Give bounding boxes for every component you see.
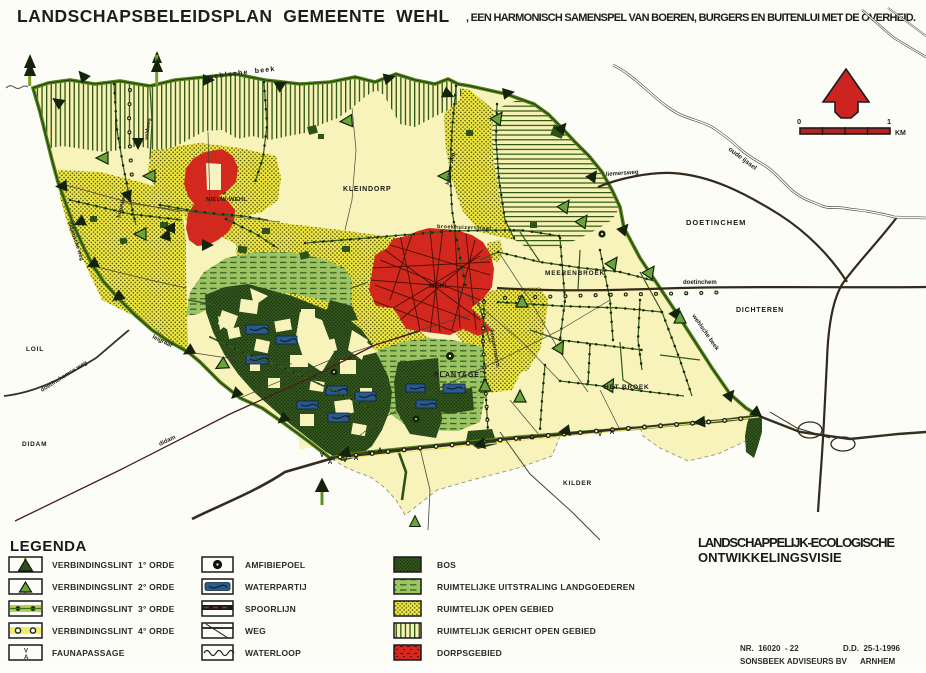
- svg-text:ONTWIKKELINGSVISIE: ONTWIKKELINGSVISIE: [698, 550, 842, 565]
- svg-text:A: A: [354, 456, 359, 462]
- svg-text:V: V: [343, 458, 347, 464]
- svg-text:A: A: [24, 655, 29, 661]
- svg-text:doetinchem: doetinchem: [683, 280, 717, 286]
- svg-text:LOIL: LOIL: [26, 346, 44, 353]
- svg-text:LANDSCHAPSBELEIDSPLAN GEMEENT: LANDSCHAPSBELEIDSPLAN GEMEENTE WEHL: [17, 6, 450, 26]
- svg-text:D.D. 25-1-1996: D.D. 25-1-1996: [843, 644, 900, 653]
- svg-text:RUIMTELIJK OPEN GEBIED: RUIMTELIJK OPEN GEBIED: [437, 604, 554, 614]
- svg-text:AMFIBIEPOEL: AMFIBIEPOEL: [245, 560, 305, 570]
- svg-text:A: A: [378, 448, 383, 454]
- svg-text:V: V: [518, 437, 522, 443]
- svg-text:VERBINDINGSLINT 2° ORDE: VERBINDINGSLINT 2° ORDE: [52, 582, 175, 592]
- svg-text:1: 1: [887, 117, 891, 126]
- svg-text:WEG: WEG: [245, 626, 266, 636]
- svg-text:V: V: [598, 432, 602, 438]
- svg-text:VERBINDINGSLINT 4° ORDE: VERBINDINGSLINT 4° ORDE: [52, 626, 175, 636]
- svg-text:KLEINDORP: KLEINDORP: [343, 186, 391, 193]
- svg-text:NIEUW-WEHL: NIEUW-WEHL: [206, 197, 247, 203]
- svg-text:WATERLOOP: WATERLOOP: [245, 648, 301, 658]
- svg-text:A: A: [610, 430, 615, 436]
- svg-text:, EEN HARMONISCH SAMENSPEL VAN: , EEN HARMONISCH SAMENSPEL VAN BOEREN, B…: [466, 12, 916, 24]
- svg-text:V: V: [320, 453, 324, 459]
- svg-text:NR. 16020 - 22: NR. 16020 - 22: [740, 644, 799, 653]
- svg-text:V: V: [368, 451, 372, 457]
- svg-text:FAUNAPASSAGE: FAUNAPASSAGE: [52, 648, 125, 658]
- svg-text:LEGENDA: LEGENDA: [10, 538, 87, 555]
- svg-text:A: A: [328, 460, 333, 466]
- svg-text:ARNHEM: ARNHEM: [860, 657, 895, 666]
- svg-text:WEHL: WEHL: [429, 284, 449, 290]
- svg-text:KILDER: KILDER: [563, 480, 592, 487]
- svg-text:DOETINCHEM: DOETINCHEM: [686, 218, 746, 227]
- svg-text:DORPSGEBIED: DORPSGEBIED: [437, 648, 502, 658]
- svg-text:SONSBEEK ADVISEURS BV: SONSBEEK ADVISEURS BV: [740, 657, 848, 666]
- svg-text:LANDSCHAPPELIJK-ECOLOGISCHE: LANDSCHAPPELIJK-ECOLOGISCHE: [698, 535, 895, 550]
- svg-text:DIDAM: DIDAM: [22, 441, 47, 448]
- svg-text:0: 0: [797, 117, 801, 126]
- svg-text:RUIMTELIJK GERICHT OPEN GEBIED: RUIMTELIJK GERICHT OPEN GEBIED: [437, 626, 596, 636]
- svg-text:SPOORLIJN: SPOORLIJN: [245, 604, 296, 614]
- svg-text:RUIMTELIJKE UITSTRALING LANDGO: RUIMTELIJKE UITSTRALING LANDGOEDEREN: [437, 582, 635, 592]
- svg-text:WATERPARTIJ: WATERPARTIJ: [245, 582, 307, 592]
- svg-text:VERBINDINGSLINT 1° ORDE: VERBINDINGSLINT 1° ORDE: [52, 560, 175, 570]
- svg-text:PLANTAGE: PLANTAGE: [434, 372, 480, 379]
- svg-text:HET BROEK: HET BROEK: [604, 384, 649, 391]
- svg-text:V: V: [24, 649, 28, 655]
- svg-text:BOS: BOS: [437, 560, 456, 570]
- svg-text:DICHTEREN: DICHTEREN: [736, 307, 784, 314]
- svg-text:MEERENBROEK: MEERENBROEK: [545, 270, 605, 277]
- svg-text:A: A: [530, 435, 535, 441]
- svg-text:KM: KM: [895, 130, 906, 137]
- svg-text:VERBINDINGSLINT 3° ORDE: VERBINDINGSLINT 3° ORDE: [52, 604, 175, 614]
